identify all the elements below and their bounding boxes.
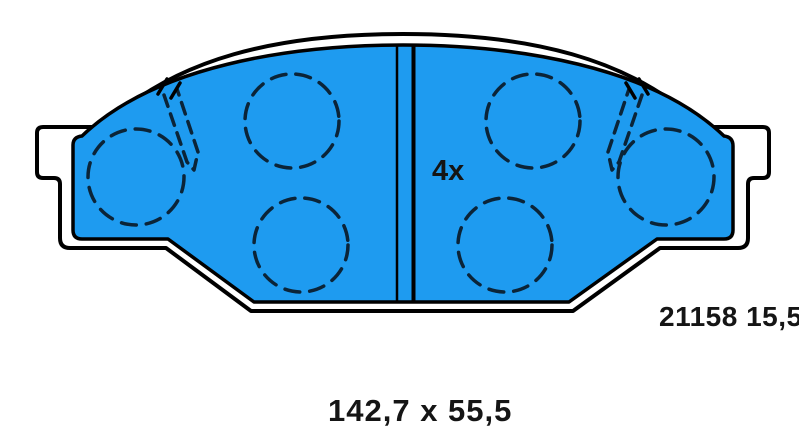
quantity-label: 4x [432,157,464,186]
brake-pad-drawing [0,0,799,446]
diagram-canvas: 4x 21158 15,5 142,7 x 55,5 [0,0,799,446]
part-number-label: 21158 15,5 [659,303,799,331]
dimensions-label: 142,7 x 55,5 [328,395,512,426]
